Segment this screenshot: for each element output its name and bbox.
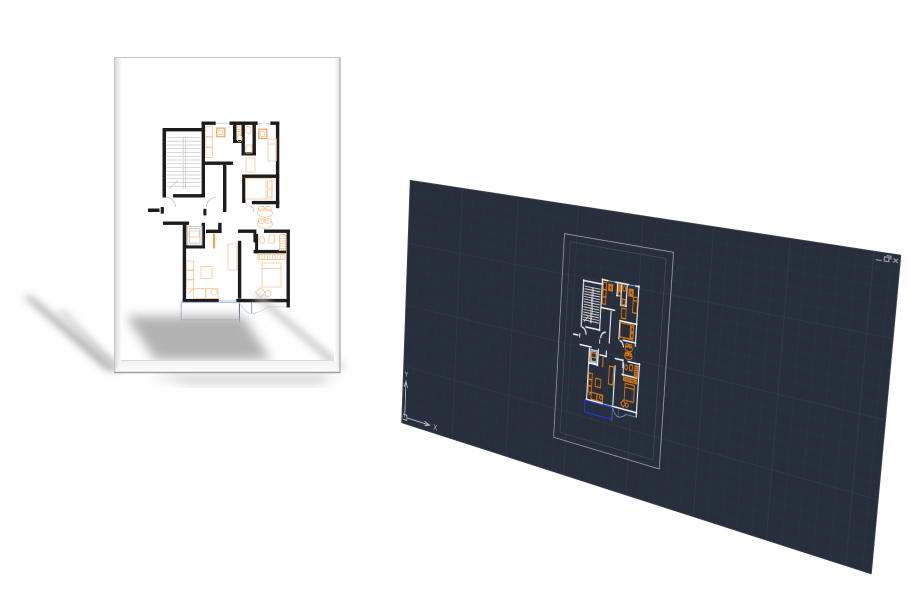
svg-text:Y: Y bbox=[404, 371, 408, 380]
svg-text:X: X bbox=[433, 424, 437, 433]
